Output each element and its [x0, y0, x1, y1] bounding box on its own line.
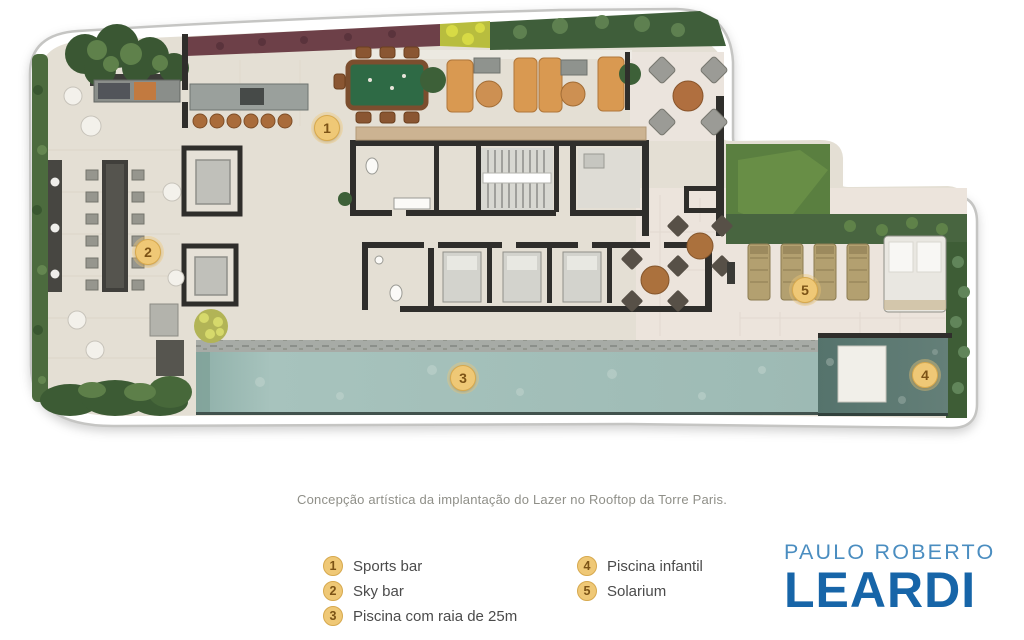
plan-marker-2: 2: [135, 239, 161, 265]
legend-label-3: Piscina com raia de 25m: [353, 608, 517, 625]
plan-marker-3: 3: [450, 365, 476, 391]
legend-badge-1: 1: [323, 556, 343, 576]
legend-item-kids-pool: 4 Piscina infantil: [577, 556, 703, 576]
sofa: [539, 58, 562, 112]
legend-item-sports-bar: 1 Sports bar: [323, 556, 517, 576]
plan-marker-4: 4: [912, 362, 938, 388]
plan-marker-3-number: 3: [459, 370, 467, 386]
wood-bench: [356, 127, 646, 140]
floorplan-rendering: [0, 0, 1024, 460]
legend-label-5: Solarium: [607, 583, 666, 600]
legend-item-lap-pool: 3 Piscina com raia de 25m: [323, 606, 517, 626]
sofa: [598, 57, 624, 111]
legend-column-1: 1 Sports bar 2 Sky bar 3 Piscina com rai…: [323, 556, 517, 631]
legend-column-2: 4 Piscina infantil 5 Solarium: [577, 556, 703, 606]
legend-label-2: Sky bar: [353, 583, 404, 600]
broker-logo: PAULO ROBERTO LEARDI: [784, 540, 1020, 615]
legend-badge-5: 5: [577, 581, 597, 601]
plan-marker-5: 5: [792, 277, 818, 303]
pool-table: [348, 62, 426, 108]
toilet: [366, 158, 378, 174]
pool-deck: [196, 340, 818, 352]
plan-marker-2-number: 2: [144, 244, 152, 260]
daybed: [884, 236, 946, 312]
plan-marker-1: 1: [314, 115, 340, 141]
sofa: [514, 58, 537, 112]
sink: [375, 256, 383, 264]
caption: Concepção artística da implantação do La…: [0, 492, 1024, 507]
logo-line-2: LEARDI: [784, 567, 1020, 615]
page: 1 2 3 4 5 Concepção artística da implant…: [0, 0, 1024, 640]
legend-item-solarium: 5 Solarium: [577, 581, 703, 601]
legend-label-1: Sports bar: [353, 558, 422, 575]
legend-badge-2: 2: [323, 581, 343, 601]
legend-badge-3: 3: [323, 606, 343, 626]
legend-item-sky-bar: 2 Sky bar: [323, 581, 517, 601]
plan-marker-4-number: 4: [921, 367, 929, 383]
bench: [394, 198, 430, 209]
plan-marker-1-number: 1: [323, 120, 331, 136]
lap-pool: [196, 352, 818, 415]
sofa: [447, 60, 473, 112]
legend-label-4: Piscina infantil: [607, 558, 703, 575]
plan-marker-5-number: 5: [801, 282, 809, 298]
toilet: [390, 285, 402, 301]
legend-badge-4: 4: [577, 556, 597, 576]
